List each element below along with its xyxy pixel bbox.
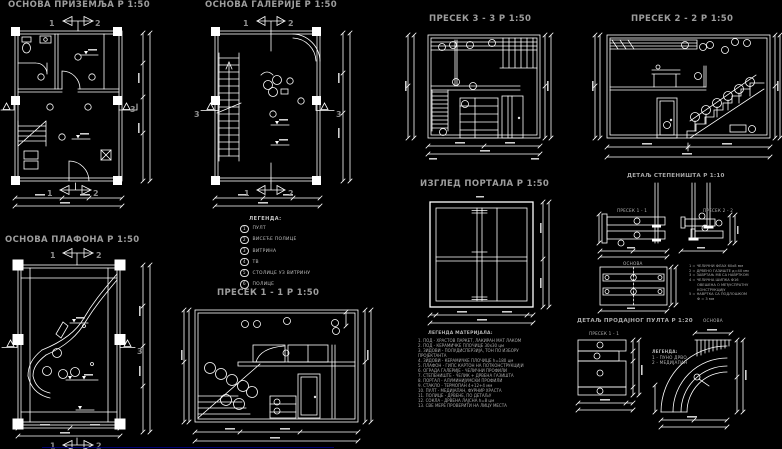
ground-plan-title: ОСНОВА ПРИЗЕМЉА Р 1:50 bbox=[8, 0, 150, 10]
section-mark-2b: 2 bbox=[93, 189, 99, 198]
section-mark-1b: 1 bbox=[47, 189, 53, 198]
section-mark-3r: 3 bbox=[137, 347, 143, 356]
legend-item: 1 ПУЛТ bbox=[240, 225, 372, 234]
counter-detail-svg: ПРЕСЕК 1 - 1 ЛЕГЕНДА: 1 - ПУНО ДРВО 2 - … bbox=[575, 325, 782, 449]
section-mark-1: 1 bbox=[243, 19, 249, 28]
portal-title: ИЗГЛЕД ПОРТАЛА Р 1:50 bbox=[420, 179, 549, 189]
equipment-legend: ЛЕГЕНДА: 1 ПУЛТ 2 ВИСЕЋЕ ПОЛИЦЕ 3 ВИТРИН… bbox=[240, 216, 372, 289]
stair-detail-legend: 1 = ЧЕЛИЧНИ ФЛАХ 60x8 мм 2 = ДРВЕНО ГАЗИ… bbox=[689, 264, 781, 302]
counter-detail-plan-label: ОСНОВА bbox=[703, 318, 723, 323]
legend-item: 5 СТОЛИЦЕ УЗ ВИТРИНУ bbox=[240, 269, 372, 278]
section-3-svg bbox=[405, 26, 563, 166]
counter-detail-drawing: ДЕТАЉ ПРОДАЈНОГ ПУЛТА Р 1:20 ОСНОВА bbox=[575, 315, 782, 449]
section-mark-2b: 2 bbox=[288, 189, 294, 198]
cad-sheet: { "palette": { "background": "#000000", … bbox=[0, 0, 782, 449]
section-3-title: ПРЕСЕК 3 - 3 Р 1:50 bbox=[429, 14, 531, 24]
legend-item-label: ВИТРИНА bbox=[253, 249, 277, 254]
legend-item-label: ПОЛИЦЕ bbox=[253, 282, 275, 287]
ground-plan-drawing: ОСНОВА ПРИЗЕМЉА Р 1:50 bbox=[0, 0, 170, 215]
legend-item-number: 3 bbox=[240, 247, 249, 256]
ceiling-plan-drawing: ОСНОВА ПЛАФОНА Р 1:50 bbox=[0, 233, 170, 449]
section-2-svg bbox=[592, 26, 782, 168]
legend-item-number: 1 bbox=[240, 225, 249, 234]
legend-item-label: ПУЛТ bbox=[253, 226, 266, 231]
legend-item-number: 2 bbox=[240, 236, 249, 245]
gallery-plan-svg: 1 2 1 2 3 3 bbox=[193, 13, 363, 215]
counter-legend-header: ЛЕГЕНДА: bbox=[652, 349, 678, 354]
portal-drawing: ИЗГЛЕД ПОРТАЛА Р 1:50 bbox=[417, 179, 563, 331]
stair-detail-plan-label: ОСНОВА bbox=[623, 261, 643, 266]
counter-detail-section-label: ПРЕСЕК 1 - 1 bbox=[589, 331, 619, 336]
section-mark-3: 3 bbox=[130, 105, 136, 114]
stair-detail-section-1-label: ПРЕСЕК 1 - 1 bbox=[617, 208, 647, 213]
bottom-edge-line bbox=[42, 447, 334, 448]
section-mark-3r: 3 bbox=[336, 110, 342, 119]
section-mark-2: 2 bbox=[95, 19, 101, 28]
section-mark-2: 2 bbox=[288, 19, 294, 28]
gallery-plan-drawing: ОСНОВА ГАЛЕРИЈЕ Р 1:50 bbox=[193, 0, 363, 215]
stair-detail-title: ДЕТАЉ СТЕПЕНИШТА Р 1:10 bbox=[627, 171, 725, 181]
equipment-legend-header: ЛЕГЕНДА: bbox=[249, 216, 372, 222]
materials-line: 13. СВЕ МЕРЕ ПРОВЕРИТИ НА ЛИЦУ МЕСТА bbox=[418, 403, 538, 408]
materials-legend: ЛЕГЕНДА МАТЕРИЈАЛА: 1. ПОД - ХРАСТОВ ПАР… bbox=[418, 331, 538, 408]
counter-legend-line: 2 - МЕДИЈАПАН bbox=[652, 360, 687, 365]
legend-item-label: СТОЛИЦЕ УЗ ВИТРИНУ bbox=[253, 271, 311, 276]
section-1-drawing: ПРЕСЕК 1 - 1 Р 1:50 bbox=[180, 288, 380, 449]
legend-item-label: ВИСЕЋЕ ПОЛИЦЕ bbox=[253, 237, 297, 242]
section-1-title: ПРЕСЕК 1 - 1 Р 1:50 bbox=[217, 288, 319, 298]
section-1-svg bbox=[180, 300, 380, 449]
section-mark-3l: 3 bbox=[194, 110, 200, 119]
stair-detail-drawing: ДЕТАЉ СТЕПЕНИШТА Р 1:10 bbox=[597, 171, 782, 317]
ceiling-plan-title: ОСНОВА ПЛАФОНА Р 1:50 bbox=[5, 235, 140, 245]
stair-detail-section-2-label: ПРЕСЕК 2 - 2 bbox=[703, 208, 733, 213]
legend-item: 3 ВИТРИНА bbox=[240, 247, 372, 256]
section-2-title: ПРЕСЕК 2 - 2 Р 1:50 bbox=[631, 14, 733, 24]
legend-item-number: 4 bbox=[240, 258, 249, 267]
ground-plan-svg: 1 2 1 2 3 bbox=[0, 13, 170, 215]
ceiling-plan-svg: 1 2 1 2 3 bbox=[0, 246, 170, 449]
section-mark-1b: 1 bbox=[244, 189, 250, 198]
section-mark-1: 1 bbox=[49, 19, 55, 28]
section-mark-1: 1 bbox=[50, 251, 56, 260]
stair-legend-line: Ф = 3 мм bbox=[697, 297, 781, 302]
section-3-drawing: ПРЕСЕК 3 - 3 Р 1:50 bbox=[405, 14, 563, 166]
legend-item-label: ТВ bbox=[253, 260, 259, 265]
materials-legend-header: ЛЕГЕНДА МАТЕРИЈАЛА: bbox=[428, 331, 538, 336]
legend-item: 4 ТВ bbox=[240, 258, 372, 267]
gallery-plan-title: ОСНОВА ГАЛЕРИЈЕ Р 1:50 bbox=[205, 0, 337, 10]
section-2-drawing: ПРЕСЕК 2 - 2 Р 1:50 bbox=[592, 14, 782, 166]
legend-item: 2 ВИСЕЋЕ ПОЛИЦЕ bbox=[240, 236, 372, 245]
legend-item-number: 5 bbox=[240, 269, 249, 278]
section-mark-2: 2 bbox=[96, 251, 102, 260]
portal-svg bbox=[417, 193, 563, 331]
